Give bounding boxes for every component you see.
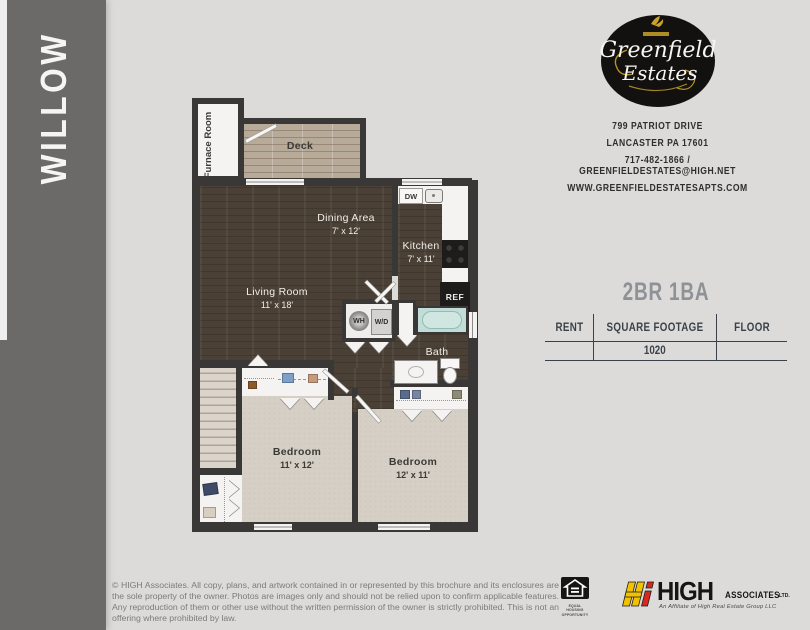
nook-item	[202, 482, 219, 496]
bedroom2-label: Bedroom 12' x 11'	[374, 456, 452, 481]
high-brand-text: HIGH	[657, 576, 713, 607]
column-square-footage: SQUARE FOOTAGE 1020	[593, 314, 716, 360]
living-room-label: Living Room 11' x 18'	[238, 286, 316, 311]
table-header-divider	[545, 341, 787, 342]
value-square-footage: 1020	[594, 341, 716, 360]
bedroom1-window	[254, 524, 292, 530]
kitchen-window	[402, 179, 442, 185]
copyright-text: © HIGH Associates. All copy, plans, and …	[112, 580, 559, 624]
equal-housing-logo: EQUAL HOUSING OPPORTUNITY	[560, 577, 590, 617]
address-line-2: LANCASTER PA 17601	[556, 138, 758, 149]
nook-shelf-edge	[224, 477, 225, 522]
table-bottom-border	[545, 360, 787, 361]
column-floor: FLOOR	[716, 314, 787, 360]
closet-item	[412, 390, 421, 399]
laundry-bifold-door	[345, 342, 365, 353]
value-rent	[545, 341, 593, 360]
dishwasher: DW	[399, 188, 423, 204]
floor-plan: Furnace Room DW REF WH W/D	[190, 94, 480, 534]
address-line-4: WWW.GREENFIELDESTATESAPTS.COM	[556, 183, 758, 194]
logo-text-line1: Greenfield	[599, 38, 716, 63]
kitchen-sink-icon	[425, 189, 443, 203]
patio-slider-door	[246, 179, 304, 185]
nook-item	[203, 507, 216, 518]
column-rent: RENT	[545, 314, 593, 360]
closet-item	[452, 390, 462, 399]
closet-item	[282, 373, 294, 383]
value-floor	[717, 341, 787, 360]
bath-vanity	[394, 360, 438, 384]
stair-closet-door	[248, 355, 268, 366]
toilet-bowl	[443, 367, 457, 384]
greenfield-estates-logo: Greenfield Estates	[599, 12, 717, 110]
equal-housing-label: EQUAL HOUSING OPPORTUNITY	[560, 604, 590, 617]
high-ltd-text: LTD.	[779, 593, 790, 599]
header-rent: RENT	[545, 314, 593, 341]
address-line-3: 717-482-1866 / GREENFIELDESTATES@HIGH.NE…	[556, 155, 758, 177]
brand-block: Greenfield Estates 799 PATRIOT DRIVE LAN…	[540, 12, 775, 194]
unit-type-title: 2BR 1BA	[574, 278, 758, 307]
nook-closet-door	[228, 499, 239, 517]
bath-window	[469, 312, 477, 338]
washer-dryer-icon: W/D	[371, 309, 392, 335]
bedroom2-window	[378, 524, 430, 530]
staircase	[200, 366, 236, 470]
address-line-1: 799 PATRIOT DRIVE	[556, 121, 758, 132]
deck-label: Deck	[270, 140, 330, 154]
bedroom1-closet-door	[304, 398, 324, 409]
closet-item	[248, 381, 257, 389]
high-associates-logo: HIGH ASSOCIATES LTD. An Affiliate of Hig…	[621, 580, 786, 616]
laundry-bifold-door	[369, 342, 389, 353]
unit-left-wall	[192, 178, 200, 532]
water-heater-icon: WH	[349, 311, 369, 331]
unit-bottom-wall	[192, 522, 476, 532]
bedroom1-label: Bedroom 11' x 12'	[258, 446, 336, 471]
closet-item	[308, 374, 318, 383]
deck-right-wall	[360, 118, 366, 180]
page-edge-sliver	[0, 0, 7, 340]
laundry-closet: WH W/D	[342, 300, 396, 342]
nook-top-wall	[192, 468, 242, 475]
closet-item	[400, 390, 410, 399]
header-square-footage: SQUARE FOOTAGE	[594, 314, 716, 341]
bedroom2-closet-door	[432, 410, 452, 421]
deck-top-wall	[236, 118, 366, 124]
bedroom2-closet-shelf	[396, 400, 466, 401]
hall-closet	[396, 300, 416, 336]
dining-area-label: Dining Area 7' x 12'	[308, 212, 384, 237]
property-name-vertical: WILLOW	[32, 44, 76, 185]
stair-closet-shelf	[244, 378, 274, 379]
high-suffix-text: ASSOCIATES	[725, 590, 780, 600]
equal-housing-icon	[561, 577, 589, 599]
sidebar: WILLOW	[0, 0, 106, 630]
kitchen-label: Kitchen 7' x 11'	[392, 240, 450, 265]
bathtub	[416, 306, 468, 334]
stair-wall	[236, 366, 242, 474]
header-floor: FLOOR	[717, 314, 787, 341]
furnace-room: Furnace Room	[192, 98, 244, 182]
high-mark-icon	[621, 580, 657, 610]
high-tagline-text: An Affiliate of High Real Estate Group L…	[659, 604, 776, 610]
unit-info-table: RENT SQUARE FOOTAGE 1020 FLOOR	[545, 314, 787, 360]
nook-closet-door	[228, 480, 239, 498]
bath-label: Bath	[416, 346, 458, 360]
logo-text-line2: Estates	[621, 61, 697, 85]
bedroom1-closet-door	[280, 398, 300, 409]
unit-right-wall	[468, 180, 478, 532]
brochure-page: { "sidebar": { "title": "WILLOW" }, "bra…	[0, 0, 810, 630]
bedroom2-closet-door	[402, 410, 422, 421]
bedroom-divider-wall	[352, 412, 358, 522]
hall-closet-door	[397, 335, 417, 346]
